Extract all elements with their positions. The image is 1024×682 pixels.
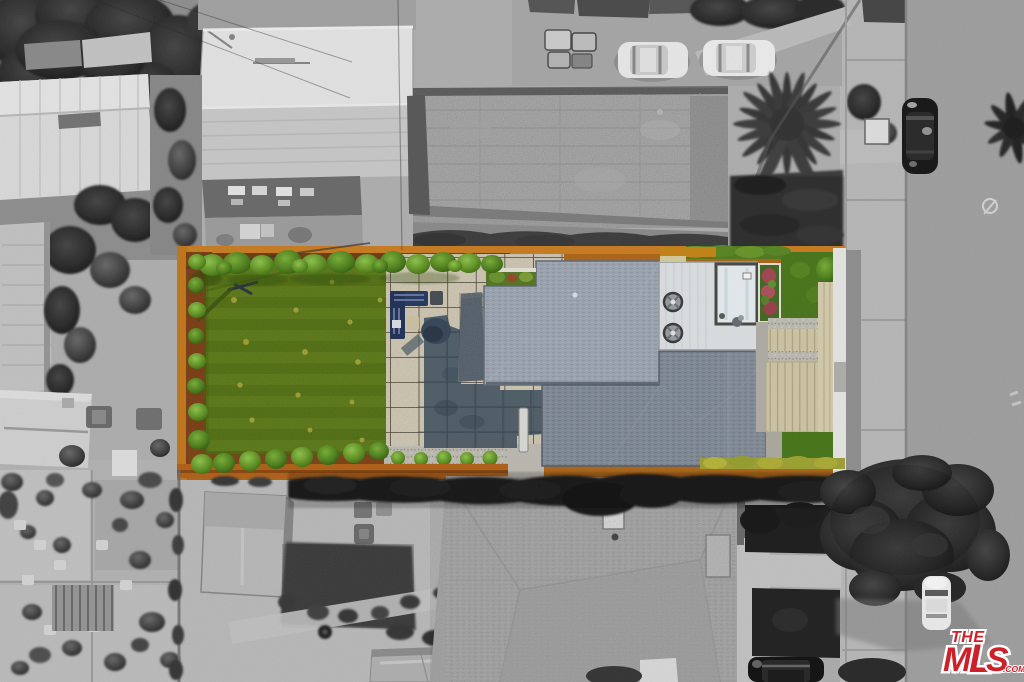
svg-text:.COM: .COM [1003,664,1024,674]
svg-text:M: M [943,641,972,679]
